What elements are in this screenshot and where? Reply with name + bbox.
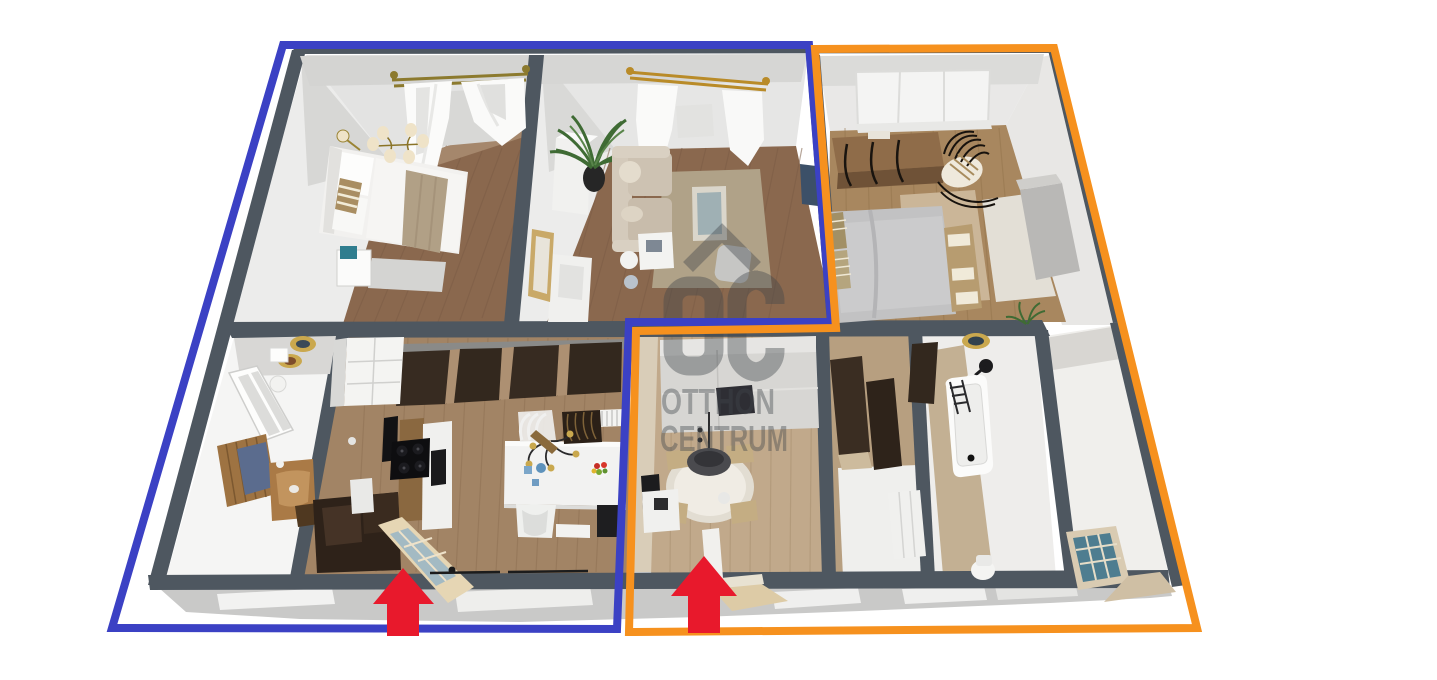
svg-text:CENTRUM: CENTRUM [660, 418, 788, 459]
svg-text:OTTHON: OTTHON [661, 381, 775, 422]
